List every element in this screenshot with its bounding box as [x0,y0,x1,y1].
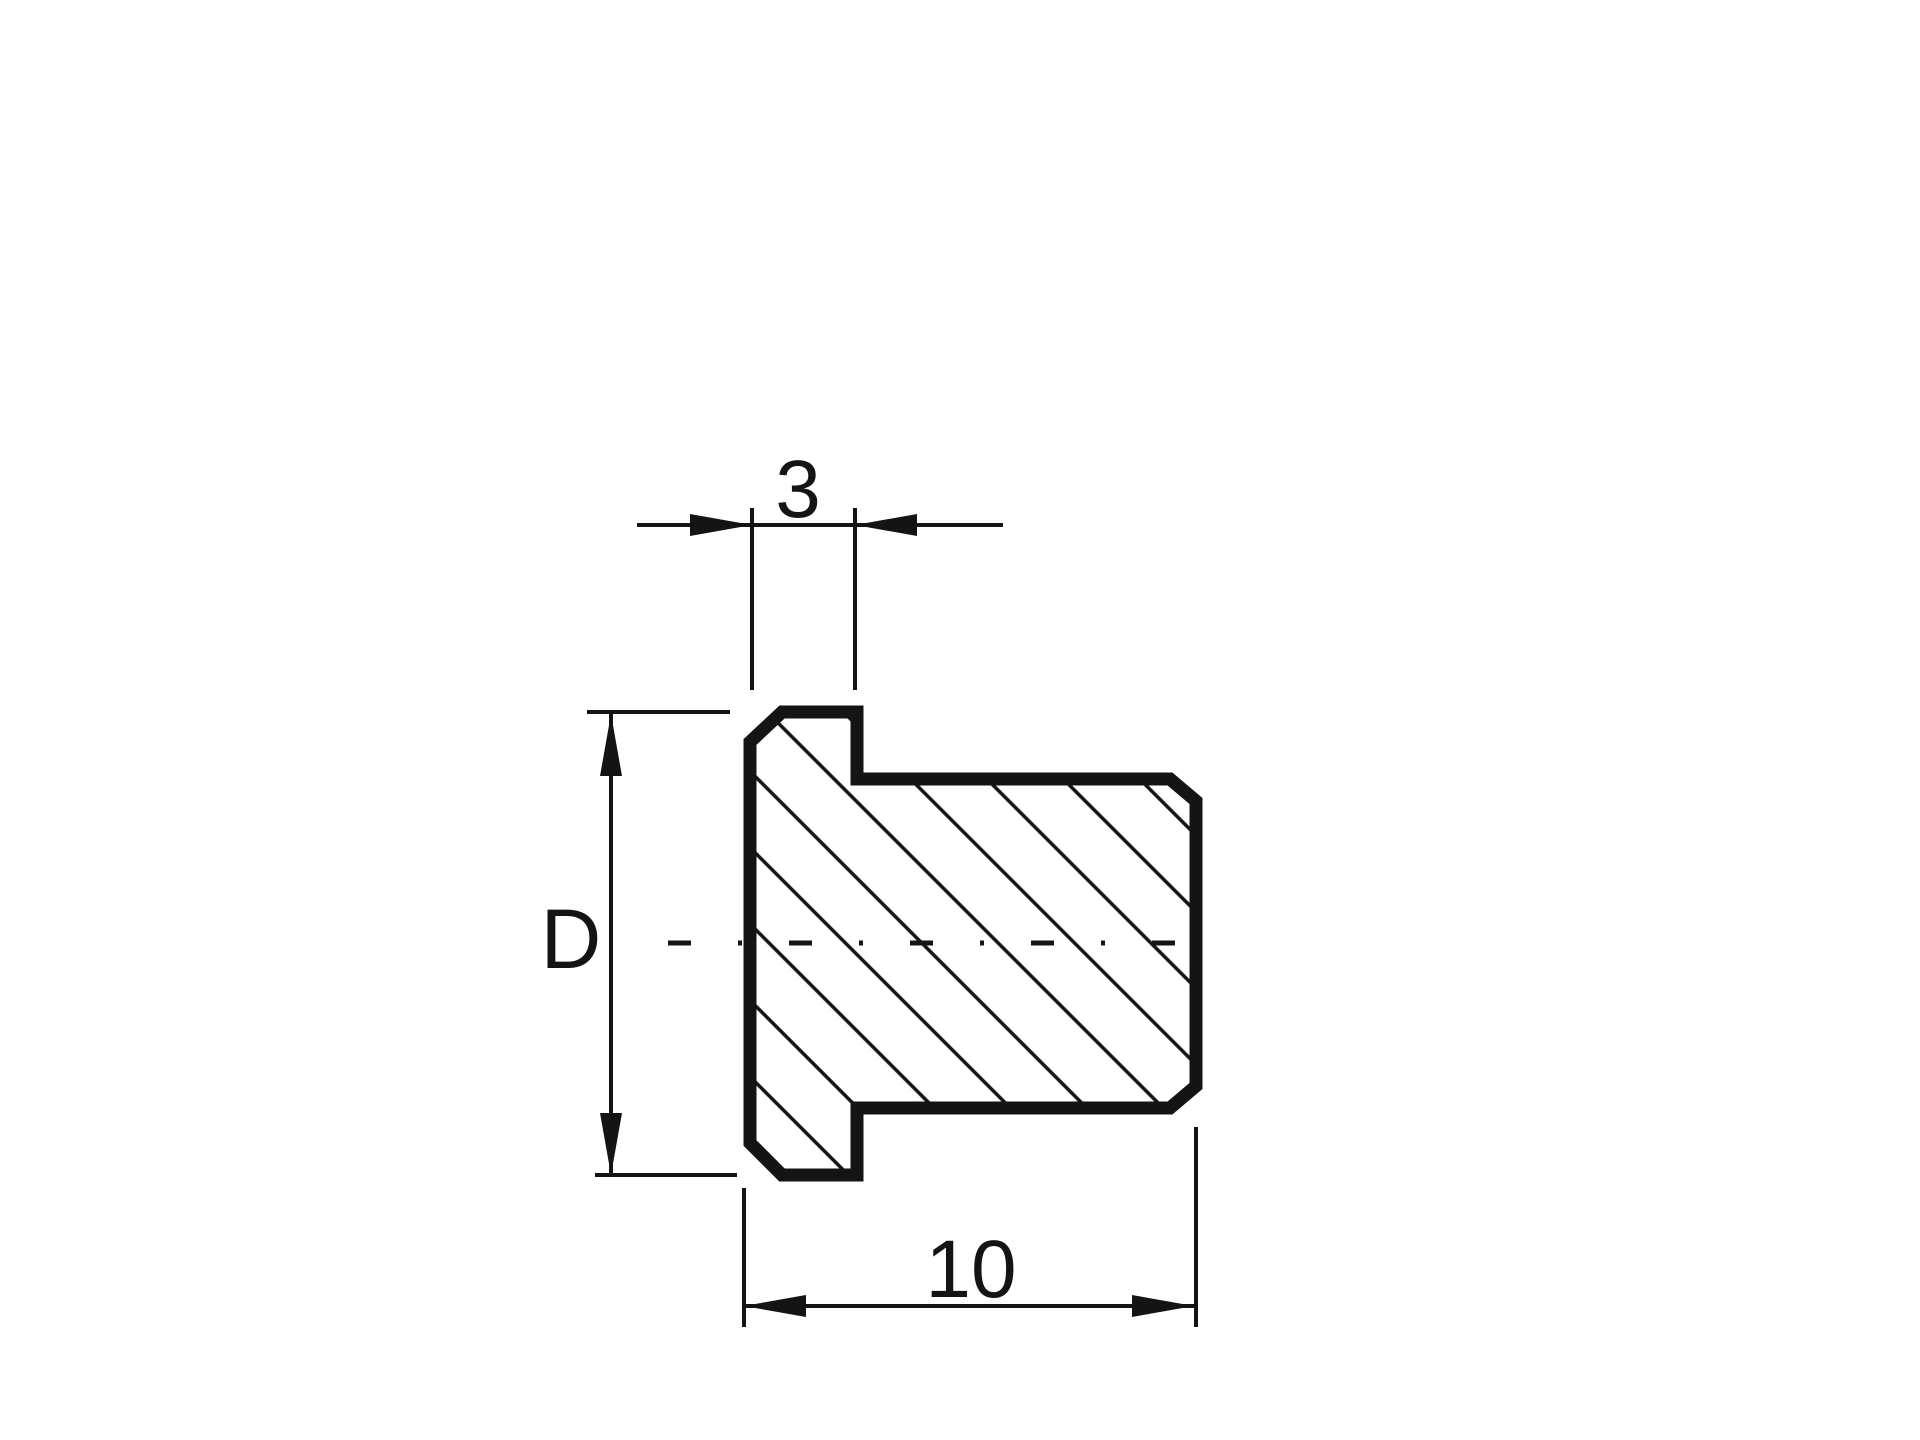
arrowhead-top [600,714,622,776]
flange-width-label: 3 [775,444,821,535]
part-outline [750,712,1196,1175]
arrowhead-left [690,514,752,536]
arrowhead-bottom [600,1113,622,1175]
drawing-canvas: 3 D 10 [0,0,1920,1440]
overall-length-label: 10 [925,1224,1016,1315]
arrowhead-right [1132,1295,1194,1317]
diameter-label: D [541,892,602,986]
arrowhead-right [855,514,917,536]
flange-width-dimension: 3 [637,444,1003,690]
diameter-dimension: D [541,712,737,1175]
arrowhead-left [744,1295,806,1317]
part-cross-section [750,712,1196,1175]
technical-drawing: 3 D 10 [0,0,1920,1440]
